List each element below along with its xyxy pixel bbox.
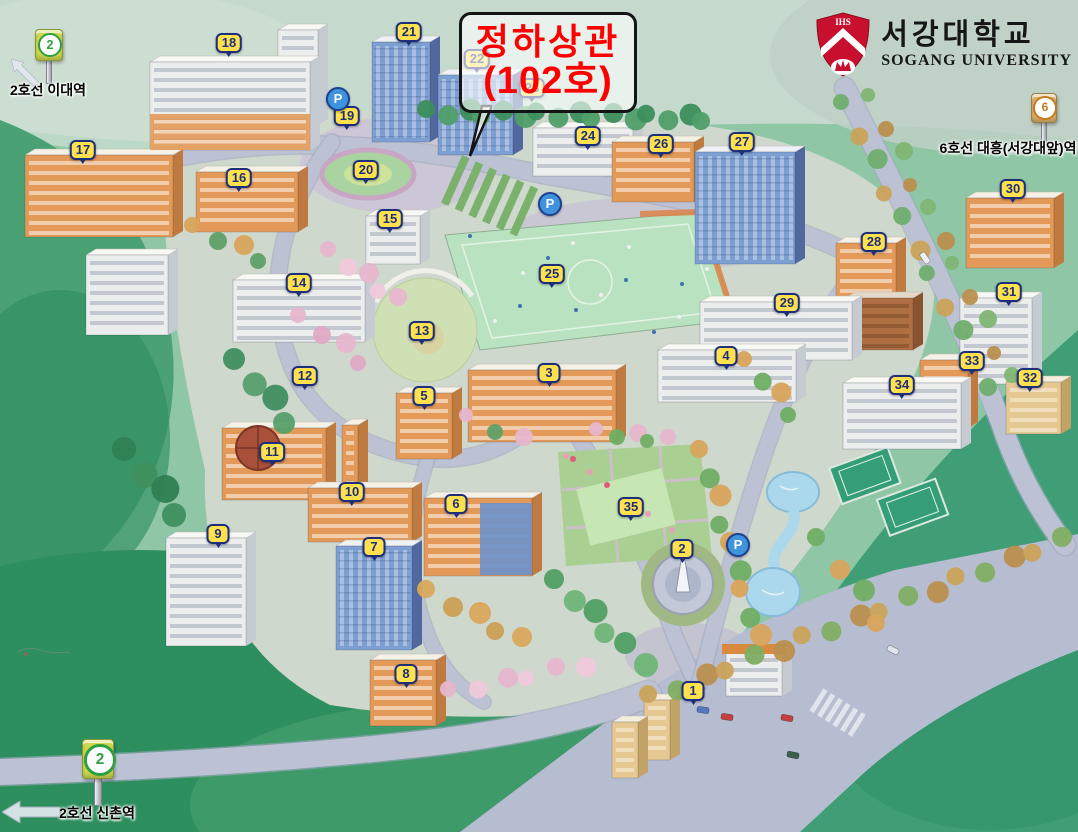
campus-map-artwork — [0, 0, 1078, 832]
building-marker-16[interactable]: 16 — [226, 168, 252, 188]
building-marker-1[interactable]: 1 — [682, 681, 705, 701]
building-marker-30[interactable]: 30 — [1000, 179, 1026, 199]
building-marker-29[interactable]: 29 — [774, 293, 800, 313]
building-marker-14[interactable]: 14 — [286, 273, 312, 293]
building-marker-6[interactable]: 6 — [445, 494, 468, 514]
university-name-english: SOGANG UNIVERSITY — [881, 53, 1072, 70]
building-marker-25[interactable]: 25 — [539, 264, 565, 284]
building-marker-2[interactable]: 2 — [671, 539, 694, 559]
parking-marker-1[interactable]: P — [326, 87, 350, 111]
building-marker-4[interactable]: 4 — [715, 346, 738, 366]
building-marker-10[interactable]: 10 — [339, 482, 365, 502]
station-line-number: 2 — [84, 744, 115, 775]
campus-map: 1234567891011121314151617181920212223242… — [0, 0, 1078, 832]
building-marker-3[interactable]: 3 — [538, 363, 561, 383]
building-marker-17[interactable]: 17 — [70, 140, 96, 160]
station-sign-pole — [94, 776, 102, 807]
university-name-korean: 서강대학교 — [881, 20, 1072, 50]
building-marker-15[interactable]: 15 — [377, 209, 403, 229]
building-marker-33[interactable]: 33 — [959, 351, 985, 371]
building-callout: 정하상관 (102호) — [459, 12, 637, 113]
shield-ihs-text: IHS — [835, 17, 851, 27]
parking-marker-3[interactable]: P — [726, 533, 750, 557]
building-marker-34[interactable]: 34 — [889, 375, 915, 395]
station-label: 2호선 이대역 — [10, 80, 86, 100]
station-label: 2호선 신촌역 — [59, 803, 135, 823]
building-marker-12[interactable]: 12 — [292, 366, 318, 386]
callout-room-number: (102호) — [483, 62, 613, 102]
arrow-left-icon — [2, 801, 60, 823]
building-marker-26[interactable]: 26 — [648, 134, 674, 154]
building-marker-5[interactable]: 5 — [413, 386, 436, 406]
building-marker-35[interactable]: 35 — [618, 497, 644, 517]
building-marker-31[interactable]: 31 — [996, 282, 1022, 302]
university-logo: IHS 서강대학교 SOGANG UNIVERSITY — [815, 12, 1072, 78]
parking-marker-2[interactable]: P — [538, 192, 562, 216]
building-marker-7[interactable]: 7 — [363, 537, 386, 557]
building-marker-9[interactable]: 9 — [207, 524, 230, 544]
building-marker-13[interactable]: 13 — [409, 321, 435, 341]
building-marker-11[interactable]: 11 — [259, 442, 285, 462]
building-marker-32[interactable]: 32 — [1017, 368, 1043, 388]
building-marker-20[interactable]: 20 — [353, 160, 379, 180]
university-shield-icon: IHS — [815, 12, 871, 78]
building-marker-27[interactable]: 27 — [729, 132, 755, 152]
station-label: 6호선 대흥(서강대앞)역 — [940, 138, 1077, 158]
building-marker-28[interactable]: 28 — [861, 232, 887, 252]
building-marker-21[interactable]: 21 — [396, 22, 422, 42]
callout-building-name: 정하상관 — [476, 23, 620, 62]
station-line-number: 6 — [1033, 96, 1057, 120]
building-marker-8[interactable]: 8 — [395, 664, 418, 684]
building-marker-18[interactable]: 18 — [216, 33, 242, 53]
building-marker-24[interactable]: 24 — [575, 126, 601, 146]
